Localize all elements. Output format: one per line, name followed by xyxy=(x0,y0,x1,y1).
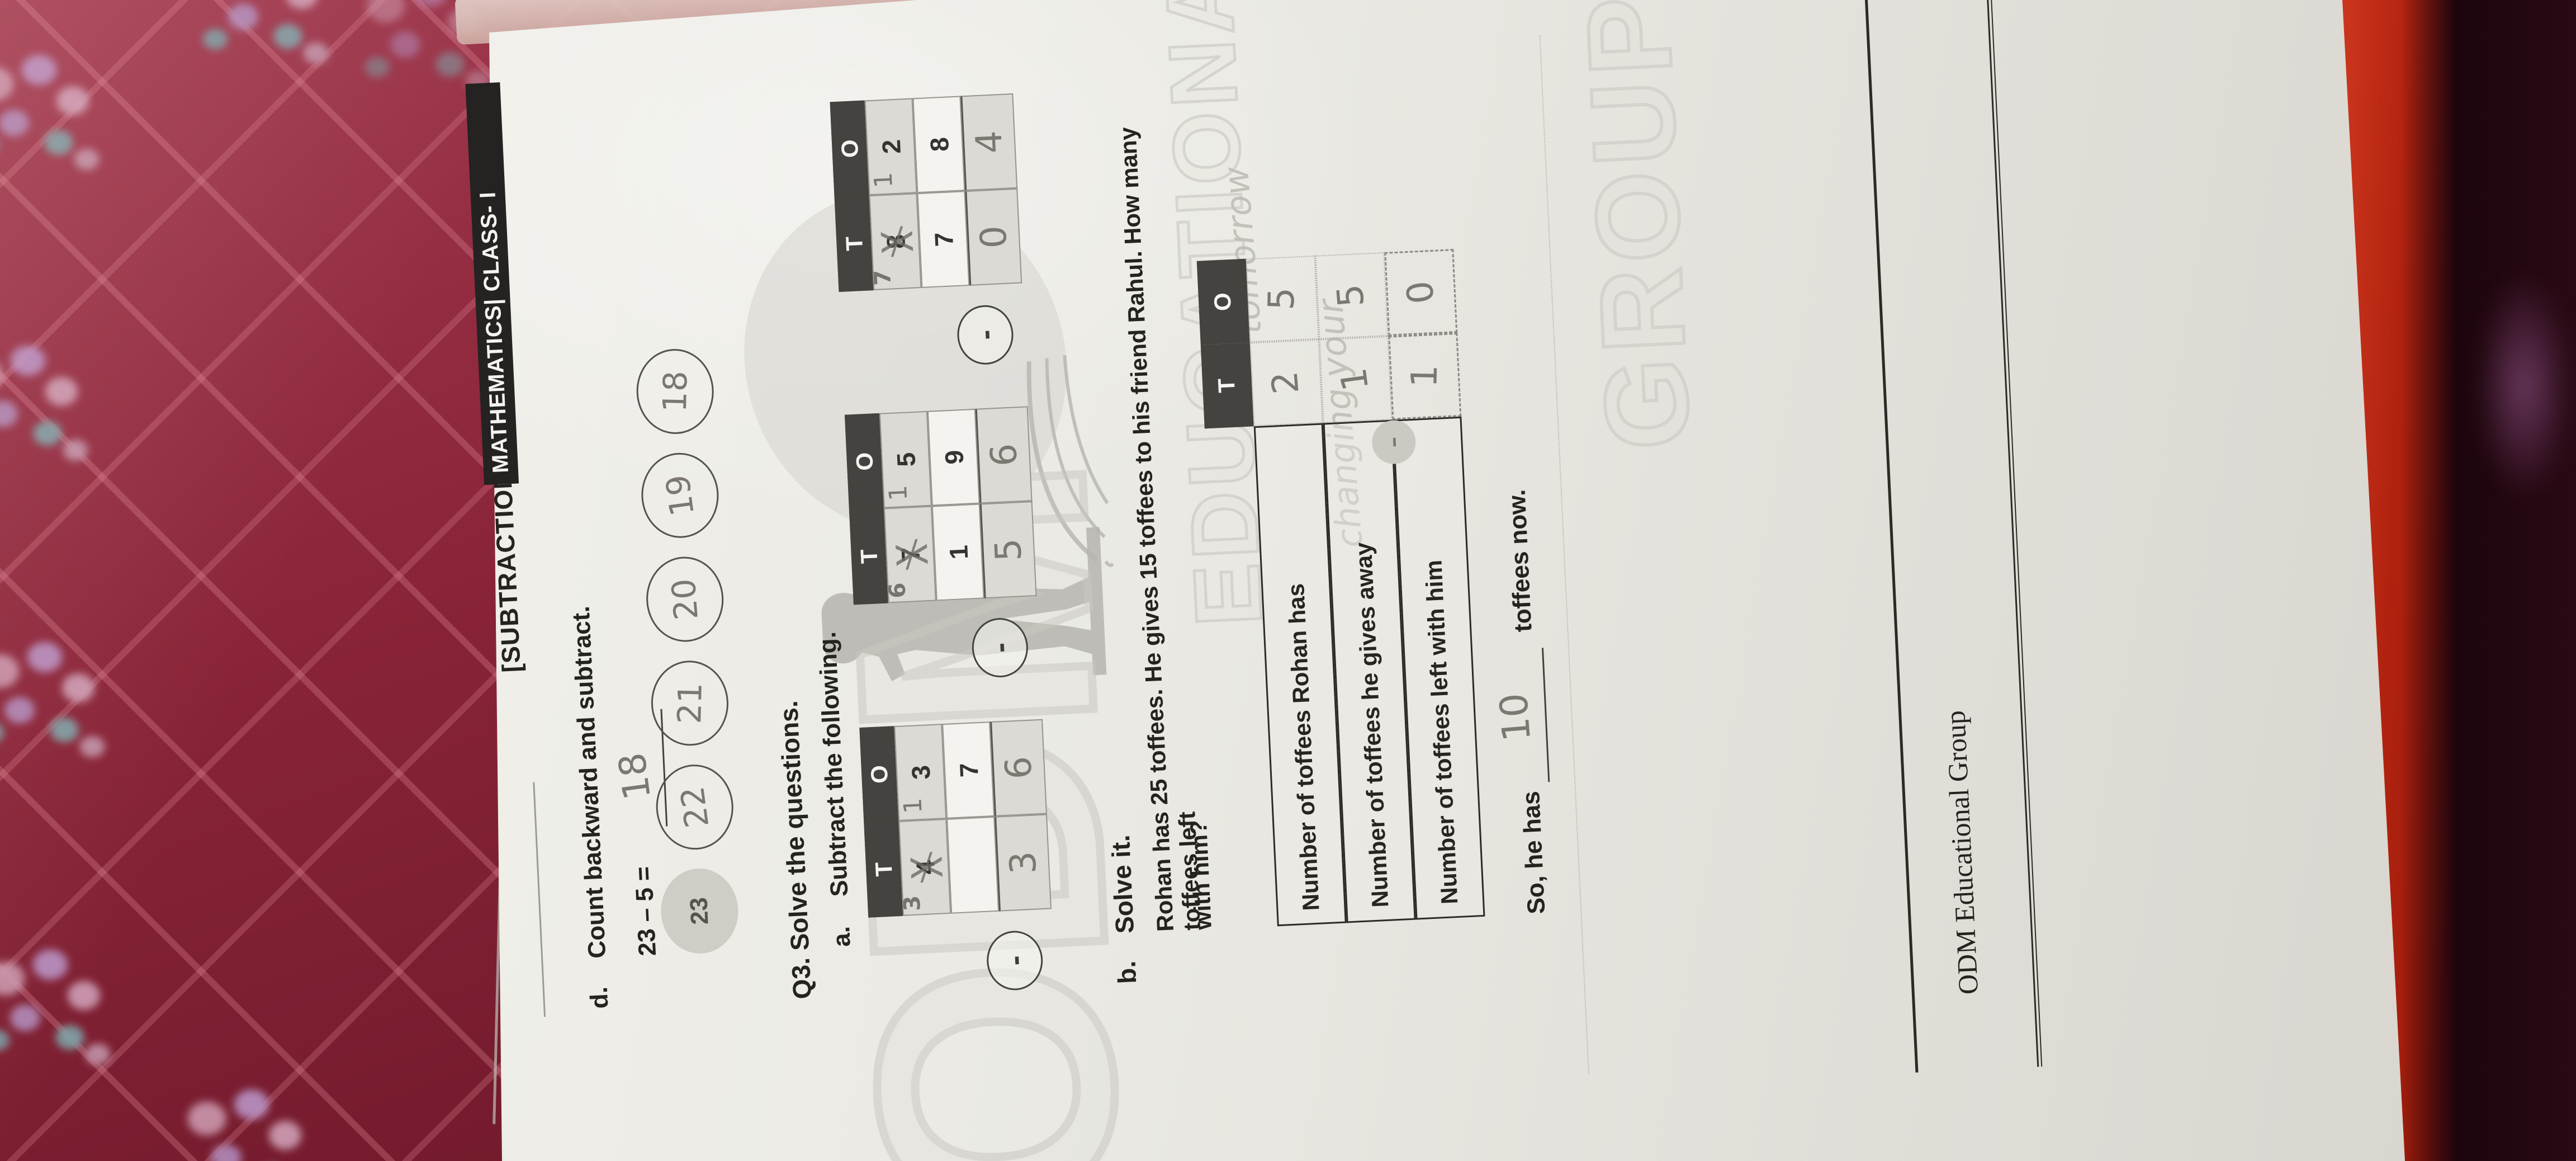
toffee-grid-answer-cell: 0 xyxy=(1384,249,1457,336)
count-circle-printed: 23 xyxy=(659,867,740,955)
handwritten-ones: 5 xyxy=(1317,282,1385,310)
minuend-ones-cell: 1 5 xyxy=(879,411,932,508)
minuend-ones-cell: 1 3 xyxy=(894,724,946,821)
minuend-ones-cell: 1 2 xyxy=(865,98,917,195)
subtraction-table-1: T O 4 3 1 3 7 3 6 xyxy=(859,719,1052,918)
answer-ones-cell: 6 xyxy=(976,406,1033,503)
handwritten-answer-tens: 3 xyxy=(1002,850,1045,875)
count-circle: 18 xyxy=(634,347,716,436)
subtrahend-tens-cell: 1 xyxy=(932,504,984,601)
shadowed-fabric-right xyxy=(2401,0,2576,1161)
answer-tens-cell: 0 xyxy=(965,188,1022,286)
handwritten-ones: 5 xyxy=(1249,287,1315,311)
carry-digit: 1 xyxy=(860,171,908,189)
item-b-title: Solve it. xyxy=(1105,834,1140,935)
watermark-group-text: GROUP xyxy=(1560,0,1716,453)
handwritten-tens: 1 xyxy=(1321,364,1389,395)
chapter-tag: [SUBTRACTION] xyxy=(486,460,527,673)
minuend-ones: 5 xyxy=(891,452,921,468)
subtrahend-ones-cell: 9 xyxy=(927,409,980,506)
class-header-bar: MATHEMATICS| CLASS- I xyxy=(465,82,519,485)
subtrahend-ones-cell: 7 xyxy=(942,721,995,819)
minuend-tens-cell: 8 7 xyxy=(869,193,922,290)
handwritten-answer-ones: 6 xyxy=(998,756,1040,780)
footer-rule-top xyxy=(1865,0,1918,1073)
handwritten-tens: 1 xyxy=(1391,364,1458,388)
toffee-grid-cell: 5 xyxy=(1246,256,1319,343)
answer-tens-cell: 5 xyxy=(980,501,1037,598)
answer-ones-cell: 6 xyxy=(990,719,1047,817)
minus-sign-circle: - xyxy=(986,929,1044,992)
paper-fold-crease xyxy=(1539,35,1589,1074)
borrow-digit: 3 xyxy=(889,894,936,912)
answer-tens-cell: 3 xyxy=(995,814,1052,912)
previous-answer-line xyxy=(533,782,546,1017)
handwritten-count-value: 21 xyxy=(652,682,727,725)
handwritten-ones: 0 xyxy=(1387,277,1455,308)
ones-header: O xyxy=(1197,259,1250,345)
handwritten-minus-sign: - xyxy=(1373,436,1412,449)
borrow-digit: 6 xyxy=(874,582,921,600)
subtrahend-tens-cell xyxy=(946,817,999,914)
q3-title: Q3. Solve the questions. xyxy=(773,700,817,1000)
handwritten-count-value: 20 xyxy=(646,575,723,622)
carry-digit: 1 xyxy=(889,797,937,815)
subtrahend-tens-cell: 7 xyxy=(917,191,969,288)
subtraction-table-3: T O 8 7 1 2 7 8 0 4 xyxy=(830,93,1022,292)
subtrahend-ones-cell: 8 xyxy=(912,96,965,193)
word-problem-line1: Rohan has 25 toffees. He gives 15 toffee… xyxy=(1111,47,1206,932)
minuend-ones: 2 xyxy=(877,139,906,154)
word-problem-line2: with him? xyxy=(1185,820,1217,931)
summary-answer-line xyxy=(1542,648,1550,782)
handwritten-count-value: 18 xyxy=(638,370,713,413)
count-circle: 20 xyxy=(645,555,726,643)
publisher-name: ODM Educational Group xyxy=(1939,710,1985,995)
handwritten-answer-ones: 4 xyxy=(968,130,1011,154)
item-a-label: a. xyxy=(827,926,856,947)
footer-rule-bottom xyxy=(1987,0,2042,1067)
toffee-grid-answer-cell: 1 xyxy=(1388,333,1461,420)
toffee-grid-cell: 5 xyxy=(1315,252,1388,339)
toffee-grid-cell: 2 xyxy=(1250,339,1323,427)
item-a-title: Subtract the following. xyxy=(813,631,854,897)
borrow-scratch-mark xyxy=(896,539,928,570)
fabric-purple-pattern xyxy=(2460,235,2576,537)
minuend-tens-cell: 7 6 xyxy=(884,506,936,603)
item-d-label: d. xyxy=(585,986,614,1009)
handwritten-equation-answer: 18 xyxy=(610,750,660,803)
carry-digit: 1 xyxy=(875,484,922,502)
subtraction-table-2: T O 7 6 1 5 1 9 5 6 xyxy=(845,406,1037,605)
summary-suffix: toffees now. xyxy=(1503,489,1538,633)
answer-ones-cell: 4 xyxy=(960,93,1017,191)
borrow-digit: 7 xyxy=(859,268,907,286)
item-b-label: b. xyxy=(1111,960,1143,984)
handwritten-answer-ones: 6 xyxy=(983,442,1026,467)
worksheet-page-content: ODM EDUCATIONAL GROUP changing your tomo… xyxy=(452,0,2374,1148)
handwritten-answer-tens: 5 xyxy=(988,537,1030,562)
minus-sign-circle: - xyxy=(956,304,1015,366)
minuend-tens-cell: 4 3 xyxy=(898,819,951,916)
handwritten-tens: 2 xyxy=(1252,369,1320,397)
count-circle-value: 23 xyxy=(685,896,713,925)
summary-prefix: So, he has xyxy=(1517,790,1551,914)
item-d-title: Count backward and subtract. xyxy=(567,605,612,959)
handwritten-summary-answer: 10 xyxy=(1491,691,1540,743)
minus-sign-circle: - xyxy=(970,617,1029,679)
borrow-scratch-mark xyxy=(910,851,943,883)
count-circle: 19 xyxy=(640,451,721,540)
borrow-scratch-mark xyxy=(880,226,913,258)
handwritten-answer-tens: 0 xyxy=(973,225,1015,249)
tens-header: T xyxy=(1201,342,1254,428)
handwritten-count-value: 19 xyxy=(641,470,719,521)
toffee-grid-cell: 1 xyxy=(1319,336,1393,423)
equation-text: 23 – 5 = xyxy=(630,866,662,956)
handwritten-count-value: 22 xyxy=(655,782,734,833)
count-circle: 22 xyxy=(654,763,735,851)
minuend-ones: 3 xyxy=(906,764,936,780)
